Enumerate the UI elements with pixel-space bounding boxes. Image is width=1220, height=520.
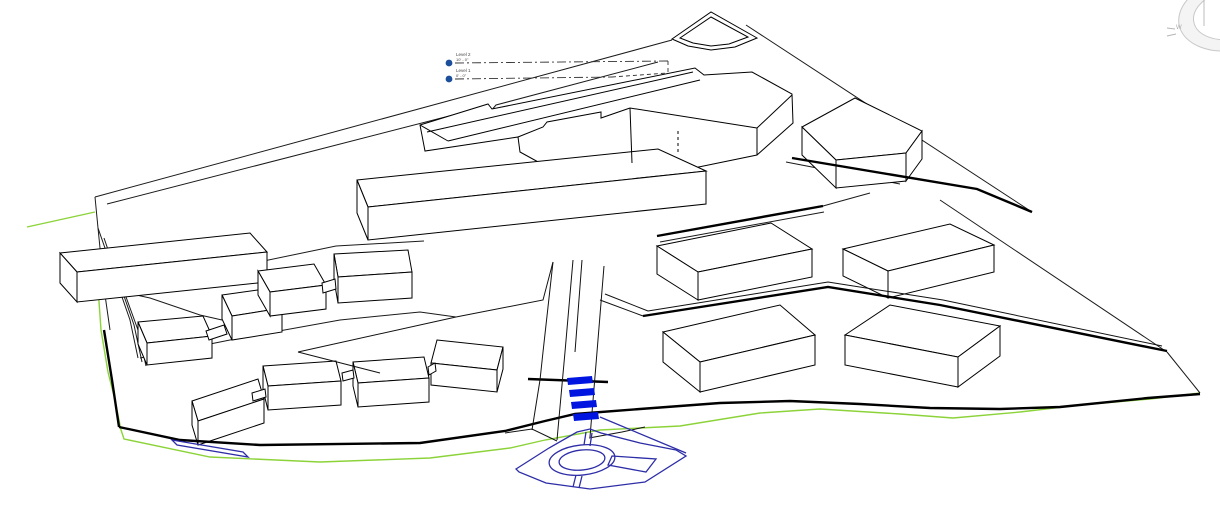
layer-viewcube-compass	[1167, 0, 1220, 61]
cad-3d-view: Level 2 10' - 0" Level 1 0' - 0" W	[0, 0, 1220, 520]
layer-level-heads	[446, 60, 453, 83]
viewport-3d[interactable]	[0, 0, 1220, 520]
compass-west-label[interactable]: W	[1176, 25, 1182, 31]
